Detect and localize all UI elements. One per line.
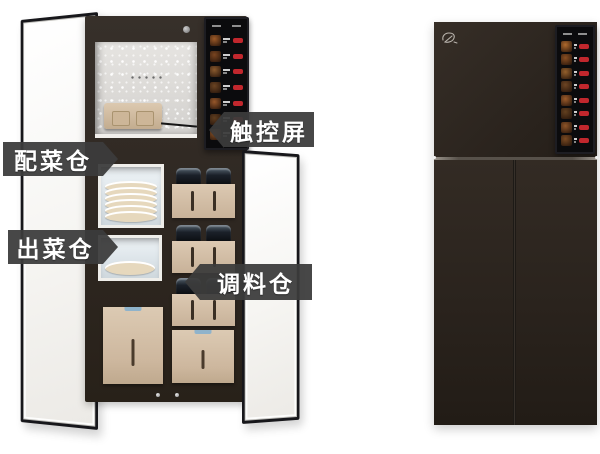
dish-photo-icon — [210, 82, 221, 93]
menu-item[interactable] — [560, 122, 590, 133]
order-price-button[interactable] — [579, 44, 589, 49]
door-divider — [513, 160, 516, 425]
lower-left-door — [434, 160, 513, 425]
menu-item[interactable] — [560, 41, 590, 52]
drawer-tab — [195, 330, 212, 334]
order-price-button[interactable] — [579, 138, 589, 143]
dish-name-lines — [574, 84, 577, 89]
dish-name-lines — [223, 69, 231, 74]
menu-item[interactable] — [560, 81, 590, 92]
seasoning-unit — [172, 168, 235, 218]
dish-name-lines — [223, 54, 231, 59]
fastener-dot — [175, 393, 179, 397]
hinge-dot — [595, 156, 598, 159]
menu-item[interactable] — [209, 35, 244, 46]
order-price-button[interactable] — [233, 54, 243, 59]
menu-header — [560, 30, 590, 38]
menu-item[interactable] — [560, 135, 590, 146]
order-price-button[interactable] — [579, 71, 589, 76]
dish-name-lines — [574, 44, 577, 49]
dish-name-lines — [223, 101, 231, 106]
dish-photo-icon — [561, 41, 572, 52]
product-annotation-figure: 配菜仓 触控屏 出菜仓 调料仓 — [0, 0, 600, 454]
dish-name-lines — [574, 71, 577, 76]
dish-photo-icon — [561, 81, 572, 92]
dish-name-lines — [223, 38, 231, 43]
order-price-button[interactable] — [233, 85, 243, 90]
dish-name-lines — [574, 98, 577, 103]
storage-drawer — [172, 330, 234, 383]
hinge-dot — [433, 156, 436, 159]
order-price-button[interactable] — [579, 125, 589, 130]
dish-photo-icon — [561, 122, 572, 133]
seasoning-panel — [172, 184, 235, 218]
order-price-button[interactable] — [233, 69, 243, 74]
dish-photo-icon — [210, 98, 221, 109]
dish-photo-icon — [561, 68, 572, 79]
menu-item[interactable] — [560, 54, 590, 65]
dish-name-lines — [574, 138, 577, 143]
menu-item[interactable] — [560, 108, 590, 119]
closed-machine — [434, 22, 597, 425]
menu-item[interactable] — [209, 98, 244, 109]
dish-photo-icon — [210, 66, 221, 77]
order-price-button[interactable] — [233, 101, 243, 106]
order-price-button[interactable] — [579, 57, 589, 62]
menu-item[interactable] — [560, 95, 590, 106]
callout-ingredient-bay: 配菜仓 — [3, 142, 103, 176]
touchscreen-menu[interactable] — [555, 25, 595, 154]
upper-door-panel — [434, 22, 597, 157]
stirrer-arm — [161, 122, 197, 127]
ingredient-bay-interior — [95, 42, 197, 138]
drawer-handle-slot — [202, 350, 205, 369]
dish-name-lines — [574, 57, 577, 62]
order-price-button[interactable] — [233, 38, 243, 43]
dish-name-lines — [574, 111, 577, 116]
lower-doors — [434, 160, 597, 425]
dish-photo-icon — [561, 95, 572, 106]
menu-header — [209, 22, 244, 30]
dish-photo-icon — [210, 35, 221, 46]
callout-dish-output-bay: 出菜仓 — [8, 230, 103, 264]
order-price-button[interactable] — [579, 84, 589, 89]
sensor-dot — [183, 26, 190, 33]
ingredient-tray — [104, 103, 162, 129]
dish-photo-icon — [561, 108, 572, 119]
dish-name-lines — [574, 125, 577, 130]
menu-item-list — [560, 38, 590, 149]
callout-seasoning-bay: 调料仓 — [200, 264, 312, 300]
order-price-button[interactable] — [579, 111, 589, 116]
dish-photo-icon — [210, 51, 221, 62]
order-price-button[interactable] — [579, 98, 589, 103]
vent-holes — [129, 76, 163, 79]
fastener-dot — [156, 393, 160, 397]
callout-touchscreen: 触控屏 — [224, 112, 314, 147]
plate — [105, 211, 157, 222]
drawer-tab — [125, 307, 142, 311]
dish-photo-icon — [561, 135, 572, 146]
seasoning-hoppers — [172, 168, 235, 184]
menu-item[interactable] — [209, 66, 244, 77]
dish-photo-icon — [561, 54, 572, 65]
menu-item[interactable] — [560, 68, 590, 79]
lower-right-door — [516, 160, 597, 425]
menu-item[interactable] — [209, 82, 244, 93]
menu-item[interactable] — [209, 51, 244, 62]
storage-drawer — [103, 307, 163, 384]
brand-logo-icon — [440, 30, 462, 48]
drawer-handle-slot — [132, 339, 135, 366]
dish-name-lines — [223, 85, 231, 90]
seasoning-hoppers — [172, 225, 235, 241]
